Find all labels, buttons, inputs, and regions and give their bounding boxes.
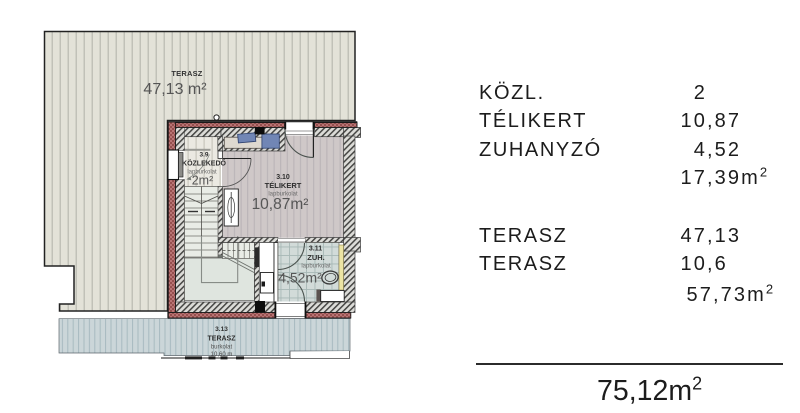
svg-text:3.13: 3.13 [215, 326, 228, 333]
svg-text:TERASZ: TERASZ [171, 69, 202, 78]
svg-text:3.11: 3.11 [309, 246, 322, 253]
svg-text:47,13 m²: 47,13 m² [143, 81, 207, 98]
svg-text:4,52m²: 4,52m² [278, 270, 322, 286]
svg-text:3.10: 3.10 [276, 174, 290, 181]
svg-text:TÉLIKERT: TÉLIKERT [265, 181, 302, 190]
svg-text:KÖZLEKEDŐ: KÖZLEKEDŐ [182, 159, 227, 168]
svg-text:TERASZ: TERASZ [208, 336, 237, 343]
svg-text:ZUH.: ZUH. [307, 253, 325, 262]
svg-text:burkolat: burkolat [211, 345, 233, 351]
svg-text:3.9: 3.9 [199, 152, 208, 159]
svg-text:10,87m²: 10,87m² [252, 196, 309, 213]
svg-text:2m²: 2m² [192, 174, 214, 188]
